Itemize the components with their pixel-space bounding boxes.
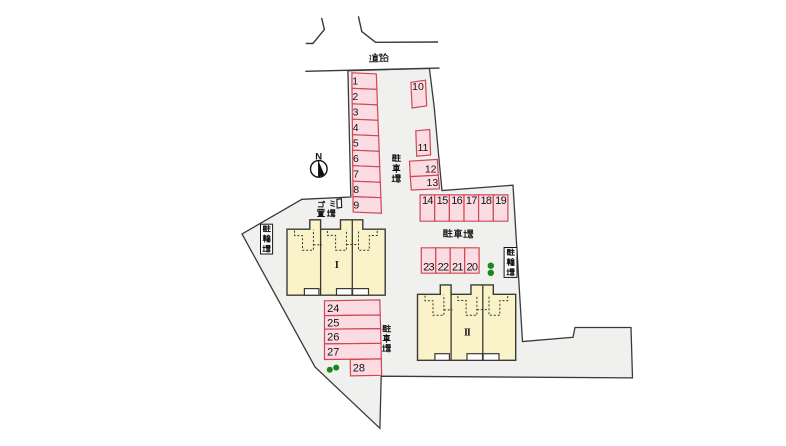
- svg-text:16: 16: [451, 195, 462, 207]
- svg-text:26: 26: [327, 332, 339, 344]
- svg-text:27: 27: [327, 347, 339, 359]
- svg-text:13: 13: [427, 177, 439, 189]
- svg-text:5: 5: [353, 138, 359, 150]
- svg-text:22: 22: [438, 261, 449, 273]
- svg-text:23: 23: [423, 261, 434, 273]
- svg-text:17: 17: [466, 195, 477, 207]
- svg-text:28: 28: [353, 363, 365, 375]
- svg-text:3: 3: [353, 107, 359, 119]
- svg-text:8: 8: [353, 184, 359, 196]
- svg-text:4: 4: [353, 122, 359, 134]
- svg-text:11: 11: [417, 142, 428, 154]
- svg-text:15: 15: [437, 195, 448, 207]
- svg-text:6: 6: [353, 153, 359, 165]
- svg-text:24: 24: [327, 303, 339, 315]
- svg-text:21: 21: [452, 261, 463, 273]
- svg-text:18: 18: [480, 195, 491, 207]
- svg-text:1: 1: [352, 76, 358, 88]
- svg-text:2: 2: [352, 91, 358, 103]
- svg-text:7: 7: [353, 169, 359, 181]
- svg-text:12: 12: [425, 163, 437, 175]
- svg-text:9: 9: [353, 200, 359, 212]
- svg-text:19: 19: [495, 195, 506, 207]
- svg-text:25: 25: [327, 317, 339, 329]
- svg-text:20: 20: [466, 261, 477, 273]
- svg-text:10: 10: [412, 81, 424, 93]
- svg-text:14: 14: [422, 195, 433, 207]
